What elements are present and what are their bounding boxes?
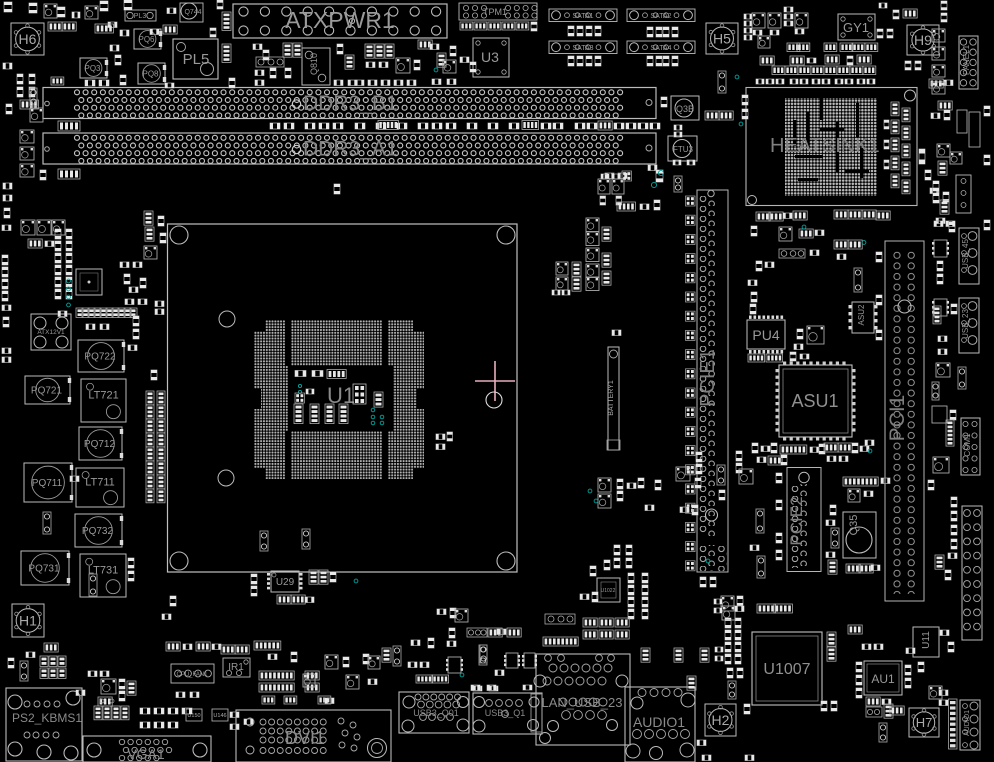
svg-text:U29: U29	[276, 577, 295, 588]
svg-text:SATA2: SATA2	[650, 13, 671, 20]
svg-text:PQ722: PQ722	[84, 352, 116, 363]
svg-text:PL3: PL3	[134, 13, 147, 20]
svg-text:AUDIO1: AUDIO1	[633, 714, 685, 730]
svg-text:Q810: Q810	[309, 53, 319, 75]
svg-text:U146: U146	[213, 713, 226, 719]
svg-text:PQ3: PQ3	[84, 64, 101, 73]
svg-text:U1022: U1022	[601, 588, 616, 594]
svg-text:PU4: PU4	[752, 327, 779, 343]
svg-text:ASU2: ASU2	[857, 304, 866, 325]
svg-text:PQ6: PQ6	[138, 35, 155, 44]
svg-text:PQ712: PQ712	[84, 439, 116, 450]
svg-text:BATTERY1: BATTERY1	[608, 380, 615, 416]
svg-text:U11: U11	[921, 631, 932, 649]
svg-text:ATXPWR1: ATXPWR1	[285, 7, 394, 33]
svg-text:COM1: COM1	[963, 433, 972, 457]
svg-text:H6: H6	[19, 31, 37, 47]
svg-text:H2: H2	[712, 712, 730, 728]
svg-text:HEATSINK1: HEATSINK1	[770, 135, 880, 157]
svg-text:CPU_FAN1: CPU_FAN1	[176, 672, 208, 678]
svg-text:SATA1: SATA1	[572, 13, 593, 20]
svg-text:PQ732: PQ732	[82, 526, 114, 537]
svg-text:LAN_USB_23: LAN_USB_23	[542, 695, 623, 710]
svg-text:PCIE1: PCIE1	[697, 349, 719, 407]
svg-text:AUDIO1: AUDIO1	[964, 710, 971, 736]
svg-text:DVI1: DVI1	[285, 728, 325, 748]
svg-text:H7: H7	[916, 715, 933, 730]
svg-text:Q744: Q744	[184, 9, 201, 16]
svg-text:PQ8: PQ8	[142, 69, 159, 78]
svg-text:DDR3_A1: DDR3_A1	[303, 138, 398, 161]
svg-text:PQ721: PQ721	[31, 386, 63, 397]
svg-text:Q35: Q35	[848, 515, 860, 536]
svg-text:SATA3: SATA3	[572, 45, 593, 52]
svg-text:SATA4: SATA4	[650, 45, 671, 52]
svg-text:U1007: U1007	[763, 661, 810, 678]
svg-text:Q3B: Q3B	[676, 104, 694, 114]
svg-text:IR1: IR1	[228, 662, 244, 673]
svg-text:PCIE2: PCIE2	[787, 496, 806, 545]
svg-text:AU1: AU1	[871, 672, 895, 686]
svg-text:H9: H9	[914, 32, 932, 48]
svg-text:PS2_KBMS1: PS2_KBMS1	[12, 711, 82, 725]
svg-text:PL5: PL5	[183, 51, 210, 68]
svg-text:VGA1: VGA1	[127, 746, 165, 762]
svg-text:ATX12V1: ATX12V1	[37, 329, 65, 336]
svg-text:LT731: LT731	[88, 564, 118, 576]
svg-text:LT711: LT711	[85, 477, 115, 489]
svg-text:ASU1: ASU1	[791, 391, 838, 411]
svg-text:USB_23: USB_23	[961, 309, 970, 339]
svg-text:DDR3_B1: DDR3_B1	[303, 92, 398, 115]
svg-text:H1: H1	[19, 612, 37, 628]
svg-text:FTU3: FTU3	[673, 145, 694, 154]
svg-text:TPM1: TPM1	[483, 7, 507, 17]
svg-text:USB_45: USB_45	[961, 239, 970, 269]
svg-text:PCI1: PCI1	[886, 395, 909, 442]
svg-text:PANEL1: PANEL1	[962, 44, 971, 75]
svg-text:USB3_Q01: USB3_Q01	[413, 708, 459, 718]
svg-text:H5: H5	[713, 30, 731, 46]
svg-text:U3: U3	[481, 49, 499, 65]
svg-text:PQ711: PQ711	[32, 478, 63, 489]
svg-text:USB3_Q1: USB3_Q1	[485, 708, 526, 718]
svg-text:LT721: LT721	[88, 389, 118, 401]
svg-text:PQ731: PQ731	[28, 564, 60, 575]
svg-text:GY1: GY1	[843, 20, 869, 35]
